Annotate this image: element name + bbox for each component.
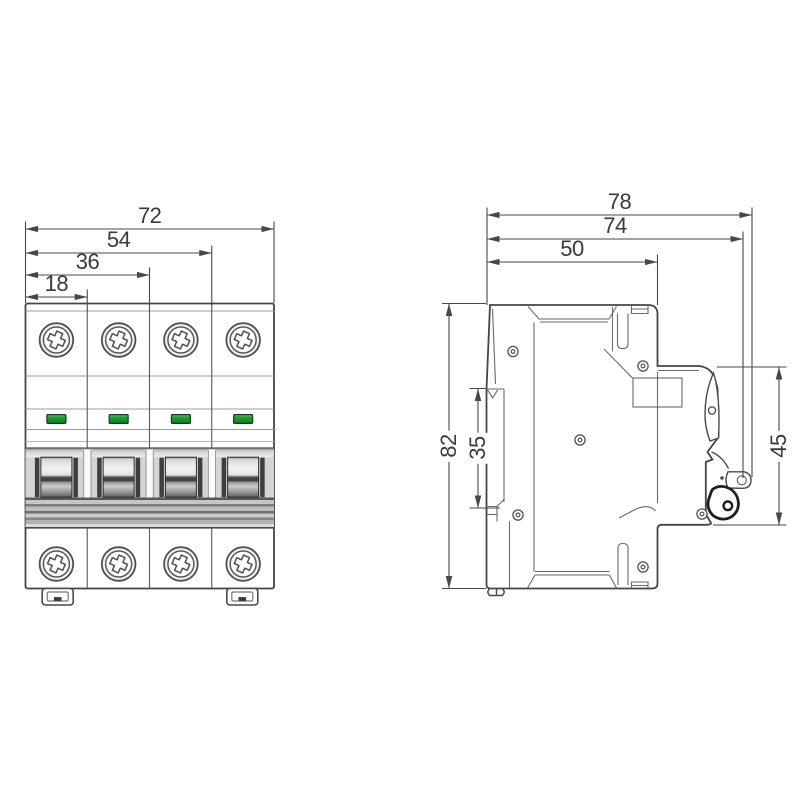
- rivet-icon: [508, 346, 518, 356]
- terminal-screw-icon: [40, 547, 74, 581]
- dim-label-width-one-module: 18: [45, 273, 68, 295]
- dim-label-depth-to-handle: 74: [603, 215, 626, 237]
- status-indicator-led: [47, 415, 66, 424]
- rivet-icon: [513, 510, 523, 520]
- status-indicator-led: [171, 415, 190, 424]
- dim-label-front-protrusion-height: 45: [768, 430, 790, 461]
- terminal-screw-icon: [226, 323, 260, 357]
- dim-label-depth-front-section: 50: [560, 238, 583, 260]
- rivet-icon: [638, 361, 648, 371]
- toggle-handle: [97, 457, 140, 497]
- side-view: [487, 305, 752, 596]
- mcb-dimension-drawing: 72 54 36 18 78 74 50 82 35 45: [0, 0, 800, 800]
- status-indicator-led: [109, 415, 128, 424]
- rail-slide-tab: [488, 589, 505, 596]
- terminal-screw-icon: [102, 323, 136, 357]
- handle-tie-bar: [26, 498, 275, 528]
- status-indicator-led: [234, 415, 253, 424]
- dim-label-width-total: 72: [138, 205, 161, 227]
- side-view-outline: [487, 305, 719, 589]
- rivet-icon: [697, 509, 707, 519]
- dim-label-width-two-modules: 36: [76, 251, 99, 273]
- din-rail-clip: [227, 589, 258, 606]
- terminal-screw-icon: [226, 547, 260, 581]
- terminal-screw-icon: [164, 323, 198, 357]
- dim-label-depth-total: 78: [608, 191, 631, 213]
- drawing-linework: [0, 0, 800, 800]
- dim-label-din-rail-section: 35: [467, 432, 489, 463]
- rivet-icon: [575, 435, 585, 445]
- rivet-icon: [638, 562, 648, 572]
- toggle-handle: [159, 457, 202, 497]
- terminal-screw-icon: [102, 547, 136, 581]
- din-rail-clip: [42, 589, 73, 606]
- dim-label-width-three-modules: 54: [107, 229, 130, 251]
- toggle-knob-side: [708, 486, 738, 519]
- front-view: [26, 304, 275, 606]
- toggle-handle: [35, 457, 78, 497]
- terminal-screw-icon: [164, 547, 198, 581]
- toggle-handle: [222, 457, 265, 497]
- dim-label-height-total: 82: [438, 430, 460, 461]
- terminal-screw-icon: [40, 323, 74, 357]
- front-view-dimensions: [26, 222, 275, 312]
- toggle-tab: [726, 472, 751, 489]
